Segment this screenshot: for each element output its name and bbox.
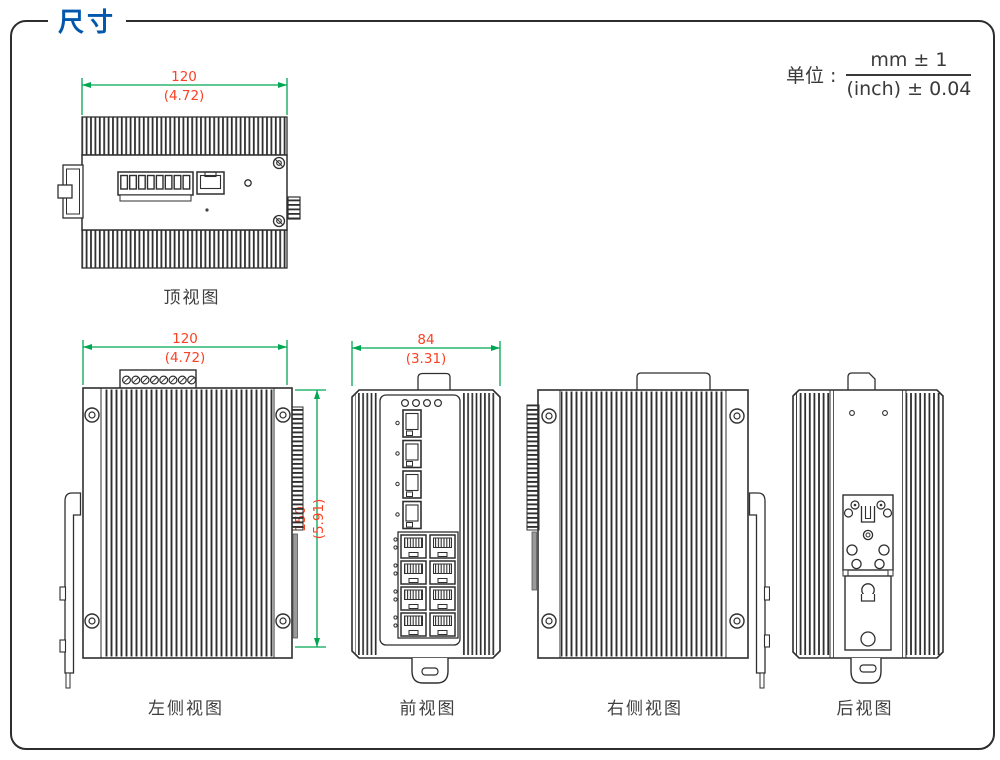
left-side-view-label: 左侧视图 [148, 694, 224, 719]
front-view: 84 (3.31) [345, 332, 515, 732]
heatsink-fins-left [796, 393, 830, 655]
heatsink-fins-lower [82, 230, 287, 268]
left-side-view: 120 (4.72) 150 (5.91) [35, 332, 345, 732]
dim-left-width-mm: 120 [172, 332, 198, 347]
terminal-block-top [120, 370, 196, 390]
rear-view: 后视图 [790, 332, 995, 732]
heatsink-fins-upper [82, 117, 287, 155]
connector-edge [527, 405, 539, 530]
top-view: 120 (4.72) [50, 55, 330, 315]
left-side-view-drawing: 120 (4.72) 150 (5.91) [35, 332, 345, 692]
mounting-screw [274, 216, 285, 227]
din-rail-clip [58, 165, 83, 218]
console-rj45-port [197, 172, 224, 194]
unit-inch-tolerance: (inch) ± 0.04 [846, 76, 971, 100]
reset-pinhole [205, 208, 208, 211]
top-terminal-protrusion [418, 374, 450, 391]
heatsink-fins-right [906, 393, 940, 655]
heatsink-fins-left [355, 393, 379, 655]
side-rib-block [288, 197, 300, 219]
din-rail-tab [851, 658, 881, 683]
heatsink-fins-right [461, 393, 496, 655]
page-title: 尺寸 [48, 2, 126, 39]
din-rail-bracket [60, 493, 81, 688]
din-mount-plate-lower [845, 576, 891, 650]
dim-left-height-inch: (5.91) [311, 499, 327, 540]
front-view-label: 前视图 [400, 694, 457, 719]
heatsink-fins [561, 392, 725, 657]
grounding-point [245, 180, 251, 186]
front-view-drawing: 84 (3.31) [345, 332, 505, 692]
top-terminal-protrusion [848, 373, 875, 390]
rear-view-drawing [790, 332, 990, 692]
right-side-view: 右侧视图 [520, 332, 775, 732]
right-side-view-label: 右侧视图 [607, 694, 683, 719]
rear-view-label: 后视图 [837, 694, 894, 719]
edge-bar [293, 534, 298, 638]
dim-left-width-inch: (4.72) [165, 350, 206, 366]
unit-fraction: mm ± 1 (inch) ± 0.04 [846, 50, 971, 100]
right-side-view-drawing [520, 332, 770, 692]
top-view-label: 顶视图 [164, 283, 221, 308]
dim-top-width-inch: (4.72) [164, 88, 205, 104]
din-rail-bracket [750, 493, 770, 688]
top-view-drawing: 120 (4.72) [50, 55, 330, 305]
din-rail-tab [412, 658, 448, 683]
unit-label: 单位 : [786, 61, 836, 88]
terminal-block [118, 172, 193, 201]
din-mount-plate-upper [843, 495, 893, 576]
connector-edge [292, 407, 303, 530]
unit-mm-tolerance: mm ± 1 [846, 50, 971, 76]
dim-front-width-mm: 84 [417, 332, 434, 348]
rj45-port-block [394, 532, 458, 638]
dim-front-width-inch: (3.31) [406, 351, 447, 367]
dim-top-width-mm: 120 [171, 69, 197, 85]
top-width-dimension: 120 (4.72) [82, 69, 287, 115]
top-terminal-protrusion [637, 373, 710, 390]
heatsink-fins [103, 390, 274, 657]
mounting-screw [274, 158, 285, 169]
edge-bar [532, 532, 537, 590]
unit-spec: 单位 : mm ± 1 (inch) ± 0.04 [786, 50, 971, 100]
